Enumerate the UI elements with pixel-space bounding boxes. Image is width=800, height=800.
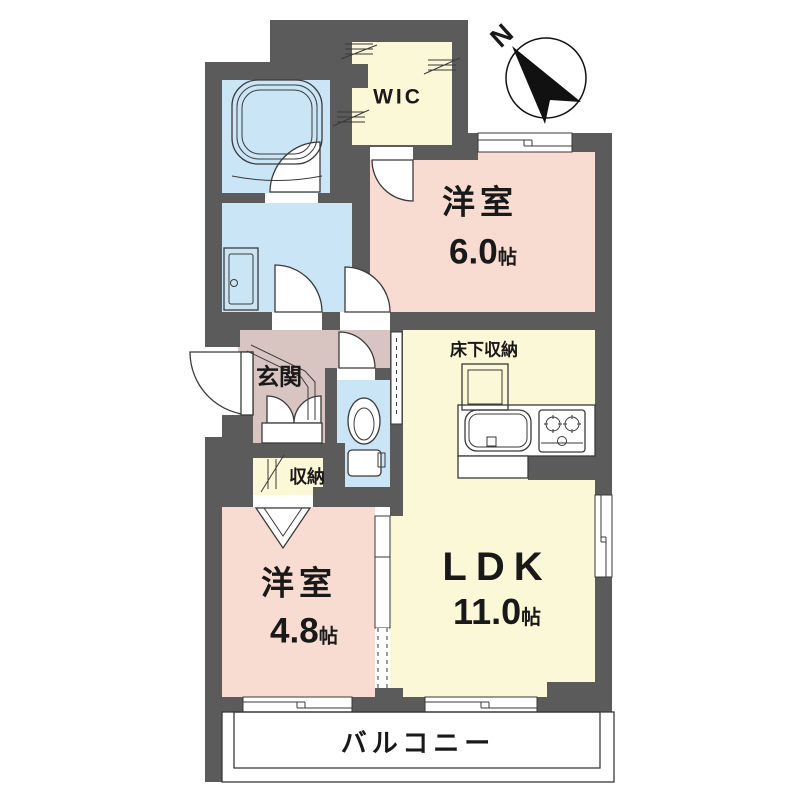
window-ldk-right	[595, 495, 612, 577]
ldk-floor-strip	[390, 516, 403, 688]
window-bedroom6-top	[478, 133, 572, 152]
ldk-floor	[403, 330, 595, 697]
window-bedroom48-balcony	[243, 697, 352, 712]
entrance-label: 玄関	[256, 366, 302, 389]
compass-icon	[506, 38, 586, 124]
sliding-door-bedroom48-ldk	[375, 516, 390, 688]
bedroom48-name: 洋室	[261, 567, 337, 600]
balcony-label: バルコニー	[341, 730, 495, 756]
entrance-door-arc	[190, 352, 253, 415]
sliding-door-hall-ldk	[391, 332, 402, 424]
bedroom48-floor	[222, 507, 375, 697]
bedroom48-size: 4.8帖	[270, 614, 338, 649]
wic-label: WIC	[373, 87, 423, 108]
floor-plan-drawing	[0, 0, 800, 800]
ldk-name: LDK	[442, 547, 551, 587]
closet-label: 収納	[289, 468, 325, 486]
window-ldk-balcony	[425, 697, 537, 712]
underfloor-storage-label: 床下収納	[450, 342, 518, 359]
bedroom6-size: 6.0帖	[449, 235, 517, 270]
bedroom6-name: 洋室	[442, 186, 518, 219]
ldk-size: 11.0帖	[453, 594, 541, 630]
floor-plan: N WIC 洋室 6.0帖 床下収納 玄関 収納 LDK 11.0帖 洋室 4.…	[0, 0, 800, 800]
